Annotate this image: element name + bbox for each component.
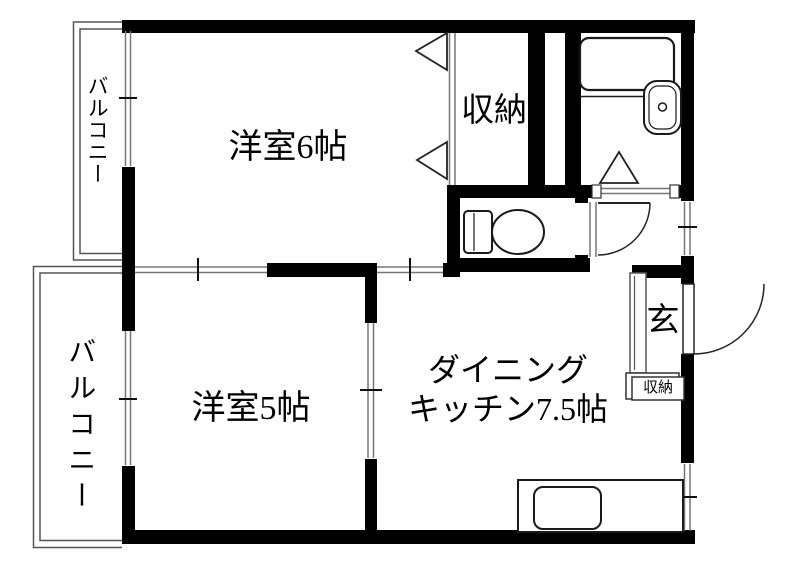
closet-door-triangles: [416, 33, 447, 179]
outer-walls: [122, 20, 695, 544]
room6-label: 洋室6帖: [200, 128, 376, 167]
dining-kitchen-label: ダイニング キッチン7.5帖: [377, 351, 639, 429]
sliding-door-room6-dk: [377, 258, 443, 281]
kitchen-sink: [534, 487, 601, 529]
room5-label: 洋室5帖: [163, 389, 339, 428]
toilet-door: [590, 202, 650, 257]
floorplan-linework: [0, 0, 800, 564]
entrance-door: [683, 284, 764, 354]
closet-label: 収納: [455, 93, 533, 131]
entrance-label: 玄: [645, 303, 681, 341]
balcony-bottom-label: バルコニー: [63, 337, 95, 517]
floorplan: 洋室6帖 収納 洋室5帖 ダイニング キッチン7.5帖 玄 収納 バルコニー バ…: [0, 0, 800, 564]
window-room6-left: [119, 31, 137, 166]
entrance-storage-label: 収納: [632, 380, 684, 397]
window-hall-right: [678, 202, 697, 255]
window-room5-left: [119, 331, 137, 465]
dining-kitchen-label-line2: キッチン7.5帖: [377, 390, 639, 429]
toilet-door-arc: [598, 203, 650, 255]
washbasin: [644, 81, 681, 134]
sliding-door-room6-room5: [135, 258, 267, 281]
toilet: [464, 210, 544, 254]
bathroom-door-triangle: [600, 152, 638, 183]
balcony-top-label: バルコニー: [85, 75, 109, 185]
bathroom-door: [592, 152, 679, 198]
entrance-door-arc: [694, 284, 764, 354]
kitchen-counter: [518, 480, 683, 532]
dining-kitchen-label-line1: ダイニング: [377, 351, 639, 390]
